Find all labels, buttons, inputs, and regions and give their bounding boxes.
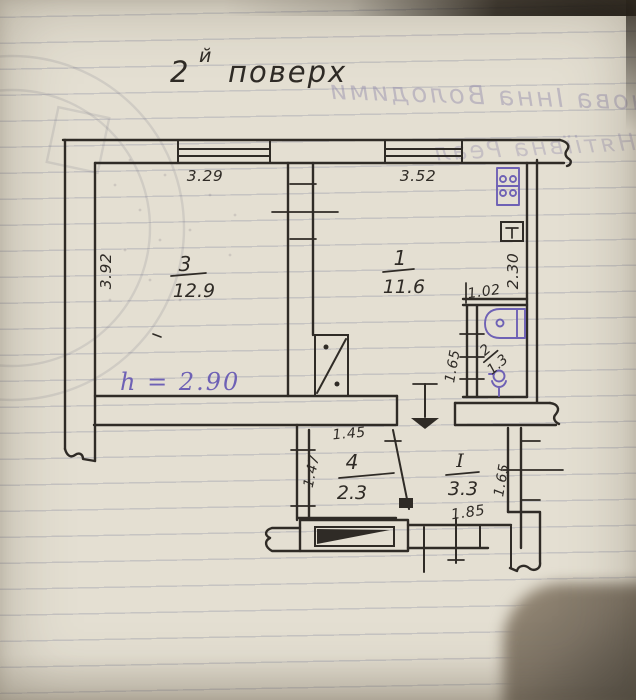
kitchen-area: 11.6	[383, 276, 425, 298]
room3-area: 12.9	[173, 280, 215, 302]
kitchen-number: 1	[394, 246, 407, 270]
ghost-line-1: нова Інна Володими	[327, 76, 636, 117]
bathtub-icon	[485, 309, 525, 338]
dim-hall-top: 1.45	[332, 425, 366, 444]
ventilation-shaft-icon	[315, 335, 348, 396]
gas-stove-icon	[497, 168, 519, 205]
room4-area: 2.3	[337, 482, 367, 504]
floor-band-walls	[94, 396, 559, 425]
ceiling-height-note: h = 2.90	[120, 368, 240, 396]
dim-room3-left: 3.92	[97, 253, 115, 290]
dim-landing-bottom: 1.85	[450, 503, 486, 524]
partition-wall	[272, 163, 338, 396]
photo-top-shadow	[0, 0, 636, 16]
room4-label: 4 2.3	[337, 450, 394, 504]
pencil-dash	[153, 334, 161, 337]
photo-right-edge-shadow	[626, 0, 636, 130]
ink-bleed-ghost-text: нова Інна Володими Нятіївна Реал	[327, 76, 636, 167]
dim-kitchen-right: 2.30	[504, 253, 522, 290]
dim-kitchen-top: 3.52	[400, 167, 437, 185]
landing-area: 3.3	[448, 478, 478, 500]
floor-number: 2	[170, 55, 190, 89]
hall-door-mark	[411, 384, 439, 429]
sink-icon	[501, 222, 523, 241]
page-title: 2 й поверх	[170, 45, 347, 89]
window-room3	[178, 140, 270, 163]
outer-walls	[63, 140, 571, 461]
room3-number: 3	[179, 252, 192, 276]
room4-number: 4	[346, 450, 359, 474]
photo-bottom-right-shadow	[503, 583, 636, 700]
landing-label: I 3.3	[446, 450, 479, 500]
stamp-icon	[0, 56, 236, 400]
room4-landing-door	[385, 430, 413, 509]
kitchen-label: 1 11.6	[383, 246, 425, 298]
landing-walls	[408, 428, 563, 572]
dim-hall-left: 1.47	[301, 453, 324, 489]
notebook-photo: нова Інна Володими Нятіївна Реал 2 й пов…	[0, 0, 636, 700]
floor-word: поверх	[228, 55, 347, 89]
dim-landing-right: 1.65	[491, 462, 513, 497]
floor-suffix: й	[199, 45, 211, 67]
dim-room3-top: 3.29	[187, 167, 224, 185]
landing-number: I	[455, 450, 464, 472]
stairs-icon	[266, 520, 408, 551]
